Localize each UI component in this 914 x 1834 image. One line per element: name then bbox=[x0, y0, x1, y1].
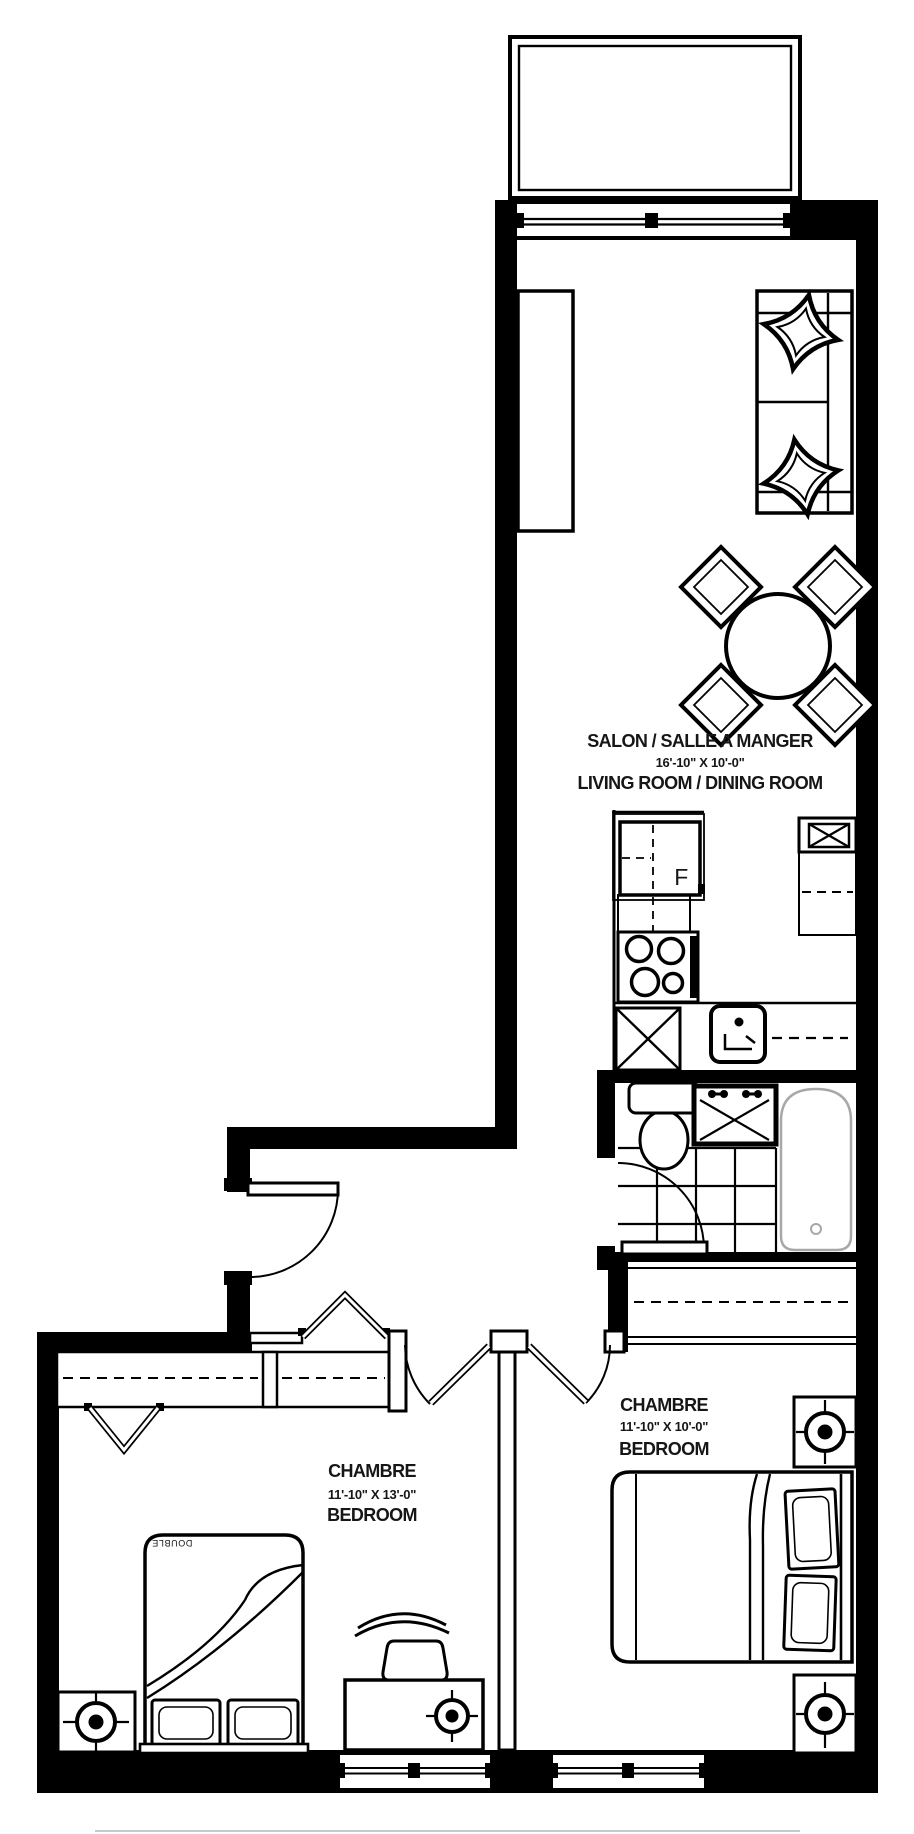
pillow bbox=[785, 1489, 839, 1570]
desk-chair bbox=[355, 1614, 449, 1680]
console-table bbox=[518, 291, 573, 531]
bedroom-right-name-fr: CHAMBRE bbox=[620, 1395, 708, 1415]
pillow bbox=[784, 1575, 837, 1651]
pillow bbox=[152, 1700, 220, 1746]
bedroom-right-door bbox=[529, 1345, 610, 1403]
bifold-door bbox=[90, 1408, 158, 1450]
dining-table bbox=[726, 594, 830, 698]
bed-double: DOUBLE bbox=[140, 1535, 308, 1753]
bedroom-left-name-en: BEDROOM bbox=[327, 1505, 417, 1525]
ceiling-light bbox=[794, 1397, 856, 1467]
ceiling-light bbox=[58, 1691, 135, 1753]
living-room-label: SALON / SALLE A MANGER 16'-10" X 10'-0" … bbox=[578, 731, 823, 793]
toilet bbox=[629, 1083, 699, 1169]
bedroom-left-label: CHAMBRE 11'-10" X 13'-0" BEDROOM bbox=[327, 1461, 417, 1525]
bedroom-right-dimensions: 11'-10" X 10'-0" bbox=[620, 1419, 708, 1434]
bedroom-left-name-fr: CHAMBRE bbox=[328, 1461, 416, 1481]
dishwasher bbox=[616, 1008, 680, 1070]
tile-floor bbox=[618, 1148, 776, 1252]
pillow bbox=[228, 1700, 298, 1746]
closet-left-bedroom bbox=[57, 1352, 390, 1450]
bed-right bbox=[612, 1472, 852, 1662]
living-room-dimensions: 16'-10" X 10'-0" bbox=[656, 755, 745, 770]
bedroom-left-door bbox=[405, 1345, 489, 1404]
bathroom-door bbox=[618, 1163, 707, 1254]
window bbox=[339, 1754, 491, 1789]
bathroom bbox=[618, 1083, 851, 1254]
bedroom-right-label: CHAMBRE 11'-10" X 10'-0" BEDROOM bbox=[619, 1395, 709, 1459]
upper-cabinet bbox=[799, 818, 856, 852]
living-room-name-en: LIVING ROOM / DINING ROOM bbox=[578, 773, 823, 793]
kitchen: F bbox=[612, 810, 856, 1070]
closet-right-bedroom bbox=[628, 1268, 856, 1344]
bedroom-left-dimensions: 11'-10" X 13'-0" bbox=[328, 1487, 416, 1502]
ceiling-light bbox=[794, 1675, 856, 1753]
vanity-sink bbox=[694, 1086, 776, 1144]
bathtub bbox=[781, 1089, 851, 1250]
dining-set bbox=[681, 547, 875, 745]
window bbox=[552, 1754, 705, 1789]
bifold-door bbox=[303, 1295, 387, 1337]
sofa bbox=[756, 287, 852, 521]
stove bbox=[618, 932, 699, 1002]
closet-vestibule bbox=[250, 1295, 390, 1343]
living-room-name-fr: SALON / SALLE A MANGER bbox=[587, 731, 813, 751]
floor-plan-drawing: SALON / SALLE A MANGER 16'-10" X 10'-0" … bbox=[0, 0, 914, 1834]
bedroom-right-name-en: BEDROOM bbox=[619, 1439, 709, 1459]
fridge-label: F bbox=[674, 864, 688, 890]
headboard bbox=[140, 1744, 308, 1753]
fridge: F bbox=[620, 822, 705, 895]
kitchen-counter-right bbox=[799, 852, 856, 935]
entry-door bbox=[248, 1183, 338, 1277]
floor-plan: SALON / SALLE A MANGER 16'-10" X 10'-0" … bbox=[0, 0, 914, 1834]
sliding-door bbox=[517, 204, 790, 236]
balcony bbox=[510, 37, 800, 198]
bed-size-label: DOUBLE bbox=[152, 1538, 193, 1548]
kitchen-sink bbox=[711, 1006, 765, 1062]
